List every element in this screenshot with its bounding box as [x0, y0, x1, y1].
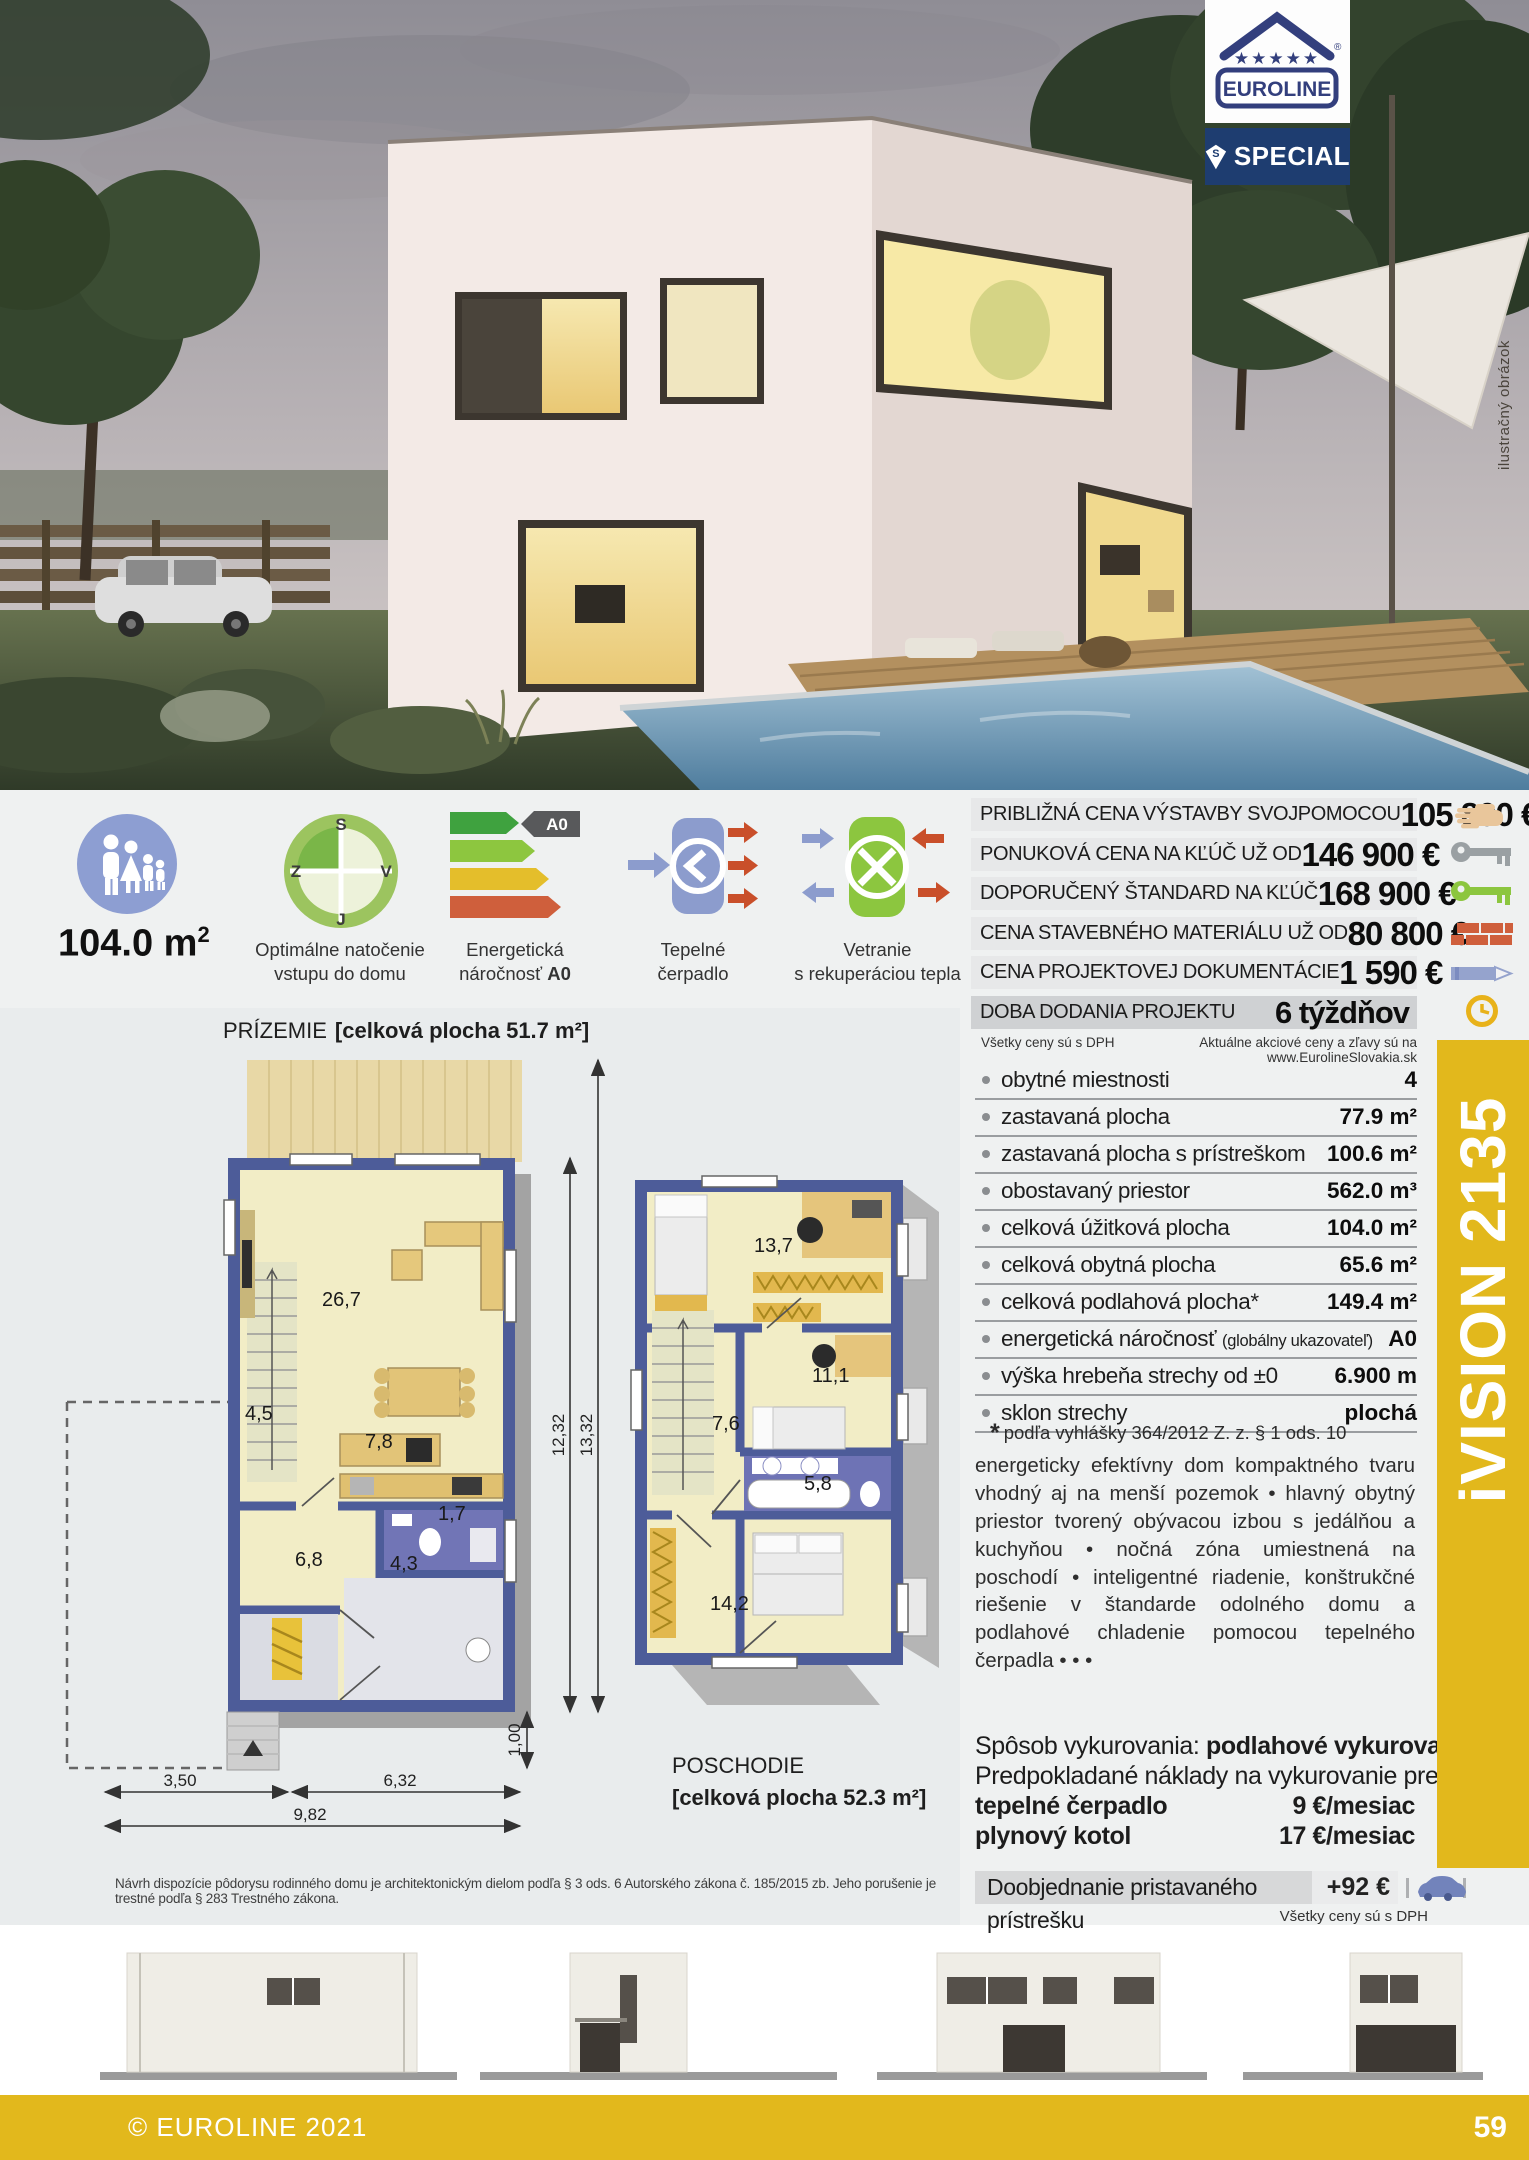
catalog-page: { "brand": {"name":"EUROLINE","registere… [0, 0, 1529, 2160]
car-icon [1404, 1872, 1468, 1904]
elevation-south [1243, 1953, 1483, 2080]
svg-text:S: S [335, 815, 346, 834]
dim-label: 9,82 [293, 1805, 326, 1824]
spec-footnote: *podľa vyhlášky 364/2012 Z. z. § 1 ods. … [990, 1422, 1420, 1444]
room-label: 26,7 [322, 1289, 361, 1311]
price-row-turnkey: PONUKOVÁ CENA NA KĽÚČ UŽ OD 146 900 € [971, 838, 1417, 871]
bullet-icon [982, 1113, 990, 1121]
dim-label: 1,00 [505, 1723, 524, 1756]
cloud [460, 5, 1060, 95]
energy-caption: Energetická náročnosť A0 [425, 938, 605, 986]
copyright-disclaimer: Návrh dispozície pôdorysu rodinného domu… [115, 1876, 975, 1906]
heating-cost-row: plynový kotol17 €/mesiac [975, 1822, 1415, 1851]
upper-floor-plan: 13,7 11,1 7,6 5,8 14,2 [612, 1160, 980, 1720]
hand-icon [1449, 798, 1515, 832]
ventilation-caption: Vetranie s rekuperáciou tepla [780, 938, 975, 986]
copyright: © EUROLINE 2021 [128, 2112, 367, 2143]
wardrobe-2 [650, 1528, 676, 1638]
bullet-icon [982, 1409, 990, 1417]
clock-icon [1449, 994, 1515, 1028]
bricks-icon [1449, 917, 1515, 951]
spec-row: zastavaná plocha s prístreškom100.6 m² [975, 1136, 1417, 1174]
spec-row: celková obytná plocha65.6 m² [975, 1247, 1417, 1285]
euroline-logo-icon: ® ★★★★★ EUROLINE [1210, 4, 1345, 119]
bullet-icon [982, 1187, 990, 1195]
room-label: 7,6 [712, 1413, 740, 1435]
bullet-icon [982, 1224, 990, 1232]
spec-row: celková podlahová plocha*149.4 m² [975, 1284, 1417, 1322]
svg-text:A0: A0 [546, 815, 568, 834]
plan-shadow [672, 1665, 880, 1705]
window-lower-front [518, 520, 704, 692]
svg-text:V: V [380, 862, 392, 881]
euroline-logo: ® ★★★★★ EUROLINE [1205, 0, 1350, 123]
energy-label-icon: A0 [450, 810, 582, 924]
window-upper-left [455, 292, 627, 420]
dim-label: 3,50 [163, 1771, 196, 1790]
price-row-standard: DOPORUČENÝ ŠTANDARD NA KĽÚČ 168 900 € [971, 877, 1417, 910]
logo-wordmark: EUROLINE [1223, 78, 1332, 101]
room-label: 4,3 [390, 1553, 418, 1575]
bed-double [753, 1533, 843, 1615]
spec-row: výška hrebeňa strechy od ±06.900 m [975, 1358, 1417, 1396]
page-number: 59 [1474, 2111, 1507, 2145]
special-badge: S SPECIAL [1205, 128, 1350, 185]
heat-pump-caption: Tepelné čerpadlo [613, 938, 773, 986]
model-name: iVISION 2135 [1437, 1040, 1529, 1560]
heating-costs-intro: Predpokladané náklady na vykurovanie pre… [975, 1762, 1415, 1791]
dim-label: 12,32 [549, 1414, 568, 1457]
addon-carport-label: Doobjednanie pristavaného prístrešku [975, 1871, 1312, 1904]
spec-row: energetická náročnosť (globálny ukazovat… [975, 1321, 1417, 1359]
room-label: 11,1 [812, 1365, 849, 1387]
bullet-icon [982, 1076, 990, 1084]
elevation-drawings [0, 1925, 1529, 2095]
price-row-self-build: PRIBLIŽNÁ CENA VÝSTAVBY SVOJPOMOCOU 105 … [971, 798, 1417, 831]
spec-row: obytné miestnosti4 [975, 1062, 1417, 1100]
bullet-icon [982, 1298, 990, 1306]
elevation-east [877, 1953, 1207, 2080]
elevation-north [480, 1953, 837, 2080]
dining-table [374, 1368, 475, 1418]
room-label: 13,7 [754, 1235, 793, 1257]
room-label: 7,8 [365, 1431, 393, 1453]
desk-1 [797, 1192, 891, 1258]
photo-caption: ilustračný obrázok [1496, 260, 1520, 470]
window-upper-mid [660, 278, 764, 404]
terrace-plan [247, 1060, 522, 1162]
ground-floor-title: PRÍZEMIE[celková plocha 51.7 m²] [223, 1018, 589, 1044]
dim-label: 13,32 [577, 1414, 596, 1457]
svg-text:Z: Z [291, 862, 301, 881]
heat-pump-icon [628, 812, 758, 922]
bullet-icon [982, 1372, 990, 1380]
key-green-icon [1449, 877, 1515, 911]
key-grey-icon [1449, 838, 1515, 872]
floor-area-value: 104.0 m2 [58, 922, 238, 966]
carport-outline [67, 1402, 228, 1768]
staircase [652, 1310, 714, 1495]
room-label: 1,7 [438, 1503, 466, 1525]
promo-note: Aktuálne akciové ceny a zľavy sú na www.… [1105, 1035, 1417, 1065]
room-label: 6,8 [295, 1549, 323, 1571]
addon-carport-price: +92 € [1312, 1871, 1398, 1904]
heating-cost-row: tepelné čerpadlo9 €/mesiac [975, 1792, 1415, 1821]
page-footer: © EUROLINE 2021 59 [0, 2095, 1529, 2160]
upper-floor-title: POSCHODIE [celková plocha 52.3 m²] [672, 1750, 926, 1814]
spec-row: obostavaný priestor562.0 m³ [975, 1173, 1417, 1211]
bed-single-2 [753, 1407, 845, 1449]
bullet-icon [982, 1261, 990, 1269]
entry-walk [227, 1712, 279, 1770]
dim-label: 6,32 [383, 1771, 416, 1790]
vat-note: Všetky ceny sú s DPH [981, 1035, 1115, 1050]
ventilation-icon [800, 812, 952, 922]
washer [272, 1618, 302, 1680]
price-row-delivery-time: DOBA DODANIA PROJEKTU 6 týždňov [971, 996, 1417, 1029]
heating-method: Spôsob vykurovania: podlahové vykurovani… [975, 1732, 1415, 1761]
pencil-icon [1449, 956, 1515, 990]
shower [466, 1638, 490, 1662]
price-row-documentation: CENA PROJEKTOVEJ DOKUMENTÁCIE 1 590 € [971, 956, 1417, 989]
bullet-icon [982, 1335, 990, 1343]
house-description: energeticky efektívny dom kompaktného tv… [975, 1452, 1415, 1675]
room-label: 4,5 [245, 1403, 273, 1425]
addon-vat-note: Všetky ceny sú s DPH [1280, 1908, 1428, 1925]
patio-glazing [1078, 482, 1192, 652]
spec-row: zastavaná plocha77.9 m² [975, 1099, 1417, 1137]
bed-single-1 [655, 1195, 707, 1311]
price-row-materials: CENA STAVEBNÉHO MATERIÁLU UŽ OD 80 800 € [971, 917, 1417, 950]
special-s-icon: S [1205, 138, 1227, 176]
compass-icon: S Z V J [282, 812, 400, 930]
ground-floor-plan: 26,7 4,5 7,8 6,8 1,7 4,3 3,50 6,32 9,82 … [40, 1050, 610, 1850]
spec-row: celková úžitková plocha104.0 m² [975, 1210, 1417, 1248]
svg-text:J: J [336, 910, 345, 929]
room-label: 14,2 [710, 1593, 749, 1615]
special-label: SPECIAL [1234, 141, 1350, 172]
tv [242, 1240, 252, 1288]
bullet-icon [982, 1150, 990, 1158]
family-icon [75, 812, 179, 916]
compass-caption: Optimálne natočenie vstupu do domu [240, 938, 440, 986]
elevation-west [100, 1953, 457, 2080]
svg-text:S: S [1212, 148, 1219, 160]
logo-stars: ★★★★★ [1234, 49, 1320, 68]
room-label: 5,8 [804, 1473, 832, 1495]
registered-mark: ® [1334, 42, 1342, 53]
